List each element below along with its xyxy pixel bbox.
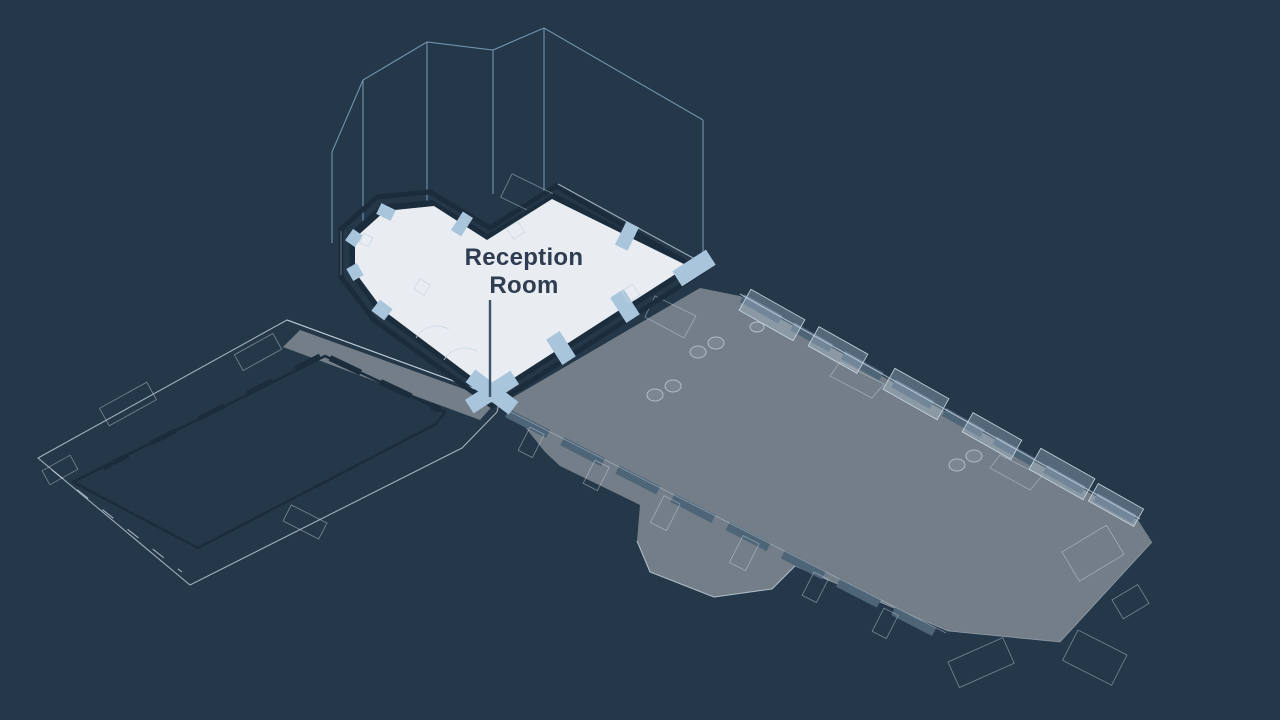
- floor-plan-svg: [0, 0, 1280, 720]
- room-label: Reception Room: [444, 244, 604, 300]
- floor-plan-stage: Reception Room: [0, 0, 1280, 720]
